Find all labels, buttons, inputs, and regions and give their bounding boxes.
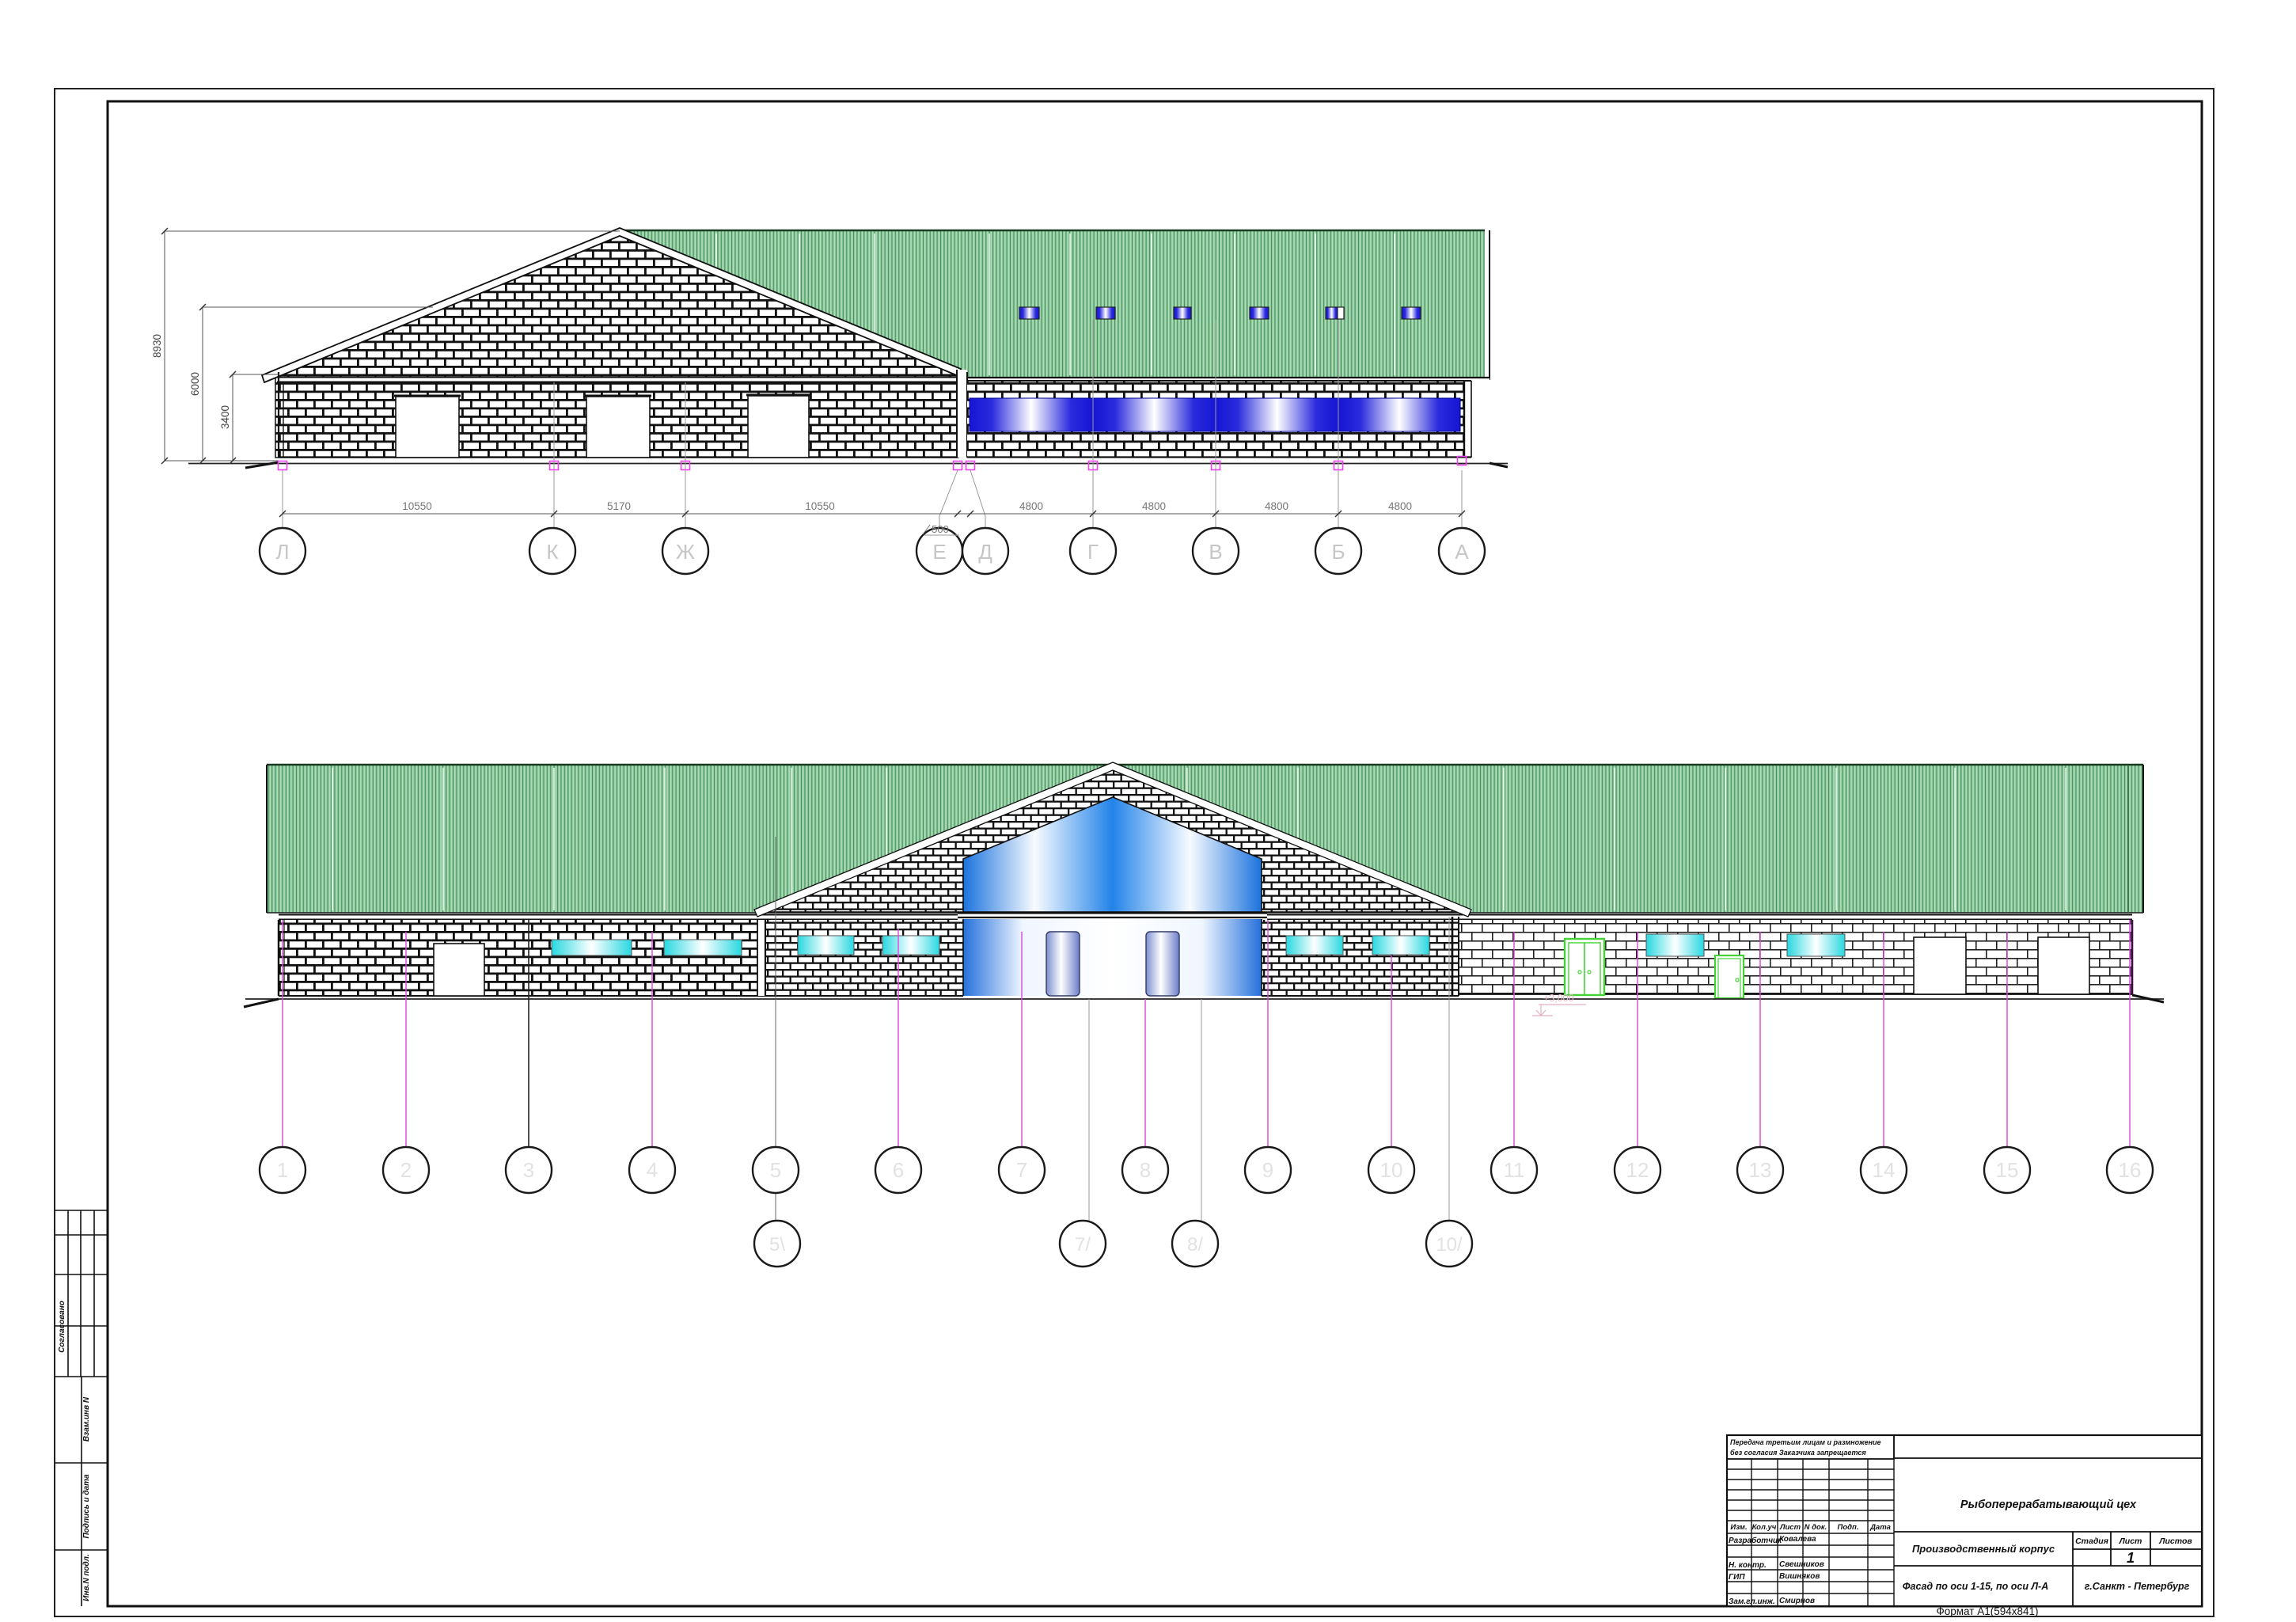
svg-text:14: 14 (1873, 1158, 1896, 1182)
svg-text:ГИП: ГИП (1729, 1573, 1745, 1582)
svg-text:8930: 8930 (151, 334, 163, 358)
svg-text:Лист: Лист (1779, 1523, 1801, 1532)
svg-text:10550: 10550 (402, 500, 432, 512)
svg-text:Л: Л (275, 540, 289, 564)
svg-text:Вишняков: Вишняков (1779, 1572, 1820, 1581)
svg-text:Рыбоперерабатывающий цех: Рыбоперерабатывающий цех (1960, 1499, 2137, 1511)
svg-text:1: 1 (277, 1158, 288, 1182)
svg-text:11: 11 (1504, 1158, 1525, 1182)
svg-text:5170: 5170 (607, 500, 631, 512)
svg-text:12: 12 (1626, 1158, 1649, 1182)
svg-text:4800: 4800 (1265, 500, 1288, 512)
svg-text:Б: Б (1331, 540, 1345, 564)
svg-text:Листов: Листов (2158, 1537, 2192, 1546)
svg-text:Г: Г (1087, 540, 1099, 564)
svg-text:7: 7 (1016, 1158, 1027, 1182)
svg-text:Д: Д (978, 540, 992, 564)
svg-text:А: А (1455, 540, 1469, 564)
svg-text:Дата: Дата (1869, 1523, 1891, 1532)
svg-text:Свешников: Свешников (1779, 1560, 1824, 1569)
svg-text:В: В (1209, 540, 1222, 564)
svg-text:Ж: Ж (676, 540, 695, 564)
svg-text:13: 13 (1749, 1158, 1772, 1182)
svg-text:Ковалева: Ковалева (1779, 1535, 1816, 1544)
svg-text:+3,000: +3,000 (1543, 993, 1574, 1004)
svg-text:4800: 4800 (1142, 500, 1166, 512)
svg-text:10/: 10/ (1436, 1234, 1463, 1255)
svg-text:Стадия: Стадия (2075, 1537, 2108, 1546)
svg-text:4800: 4800 (1019, 500, 1043, 512)
svg-text:Изм.: Изм. (1730, 1523, 1747, 1532)
svg-text:Зам.гл.инж.: Зам.гл.инж. (1729, 1597, 1775, 1606)
svg-text:9: 9 (1262, 1158, 1273, 1182)
svg-text:5\: 5\ (769, 1234, 785, 1255)
svg-text:1: 1 (2127, 1550, 2135, 1566)
svg-text:К: К (546, 540, 558, 564)
svg-text:6: 6 (893, 1158, 904, 1182)
svg-text:3: 3 (523, 1158, 534, 1182)
svg-text:Формат А1(594x841): Формат А1(594x841) (1936, 1605, 2038, 1617)
svg-text:5: 5 (770, 1158, 781, 1182)
svg-text:4: 4 (647, 1158, 658, 1182)
svg-text:Разработчик: Разработчик (1729, 1536, 1782, 1545)
svg-text:Подпись и дата: Подпись и дата (82, 1474, 91, 1538)
svg-text:8/: 8/ (1187, 1234, 1203, 1255)
svg-text:10550: 10550 (805, 500, 835, 512)
svg-text:Фасад по оси 1-15, по оси Л-А: Фасад по оси 1-15, по оси Л-А (1903, 1581, 2048, 1592)
svg-text:4800: 4800 (1388, 500, 1412, 512)
svg-text:16: 16 (2119, 1158, 2142, 1182)
svg-text:Передача третьим лицам и размн: Передача третьим лицам и размножение (1730, 1438, 1881, 1446)
svg-text:Производственный корпус: Производственный корпус (1912, 1543, 2055, 1555)
svg-text:N док.: N док. (1805, 1523, 1827, 1532)
svg-text:8: 8 (1140, 1158, 1151, 1182)
svg-text:Инв.N подл.: Инв.N подл. (82, 1554, 91, 1601)
svg-text:2: 2 (400, 1158, 412, 1182)
svg-text:без согласия Заказчика запреща: без согласия Заказчика запрещается (1730, 1449, 1866, 1457)
svg-text:Н. контр.: Н. контр. (1729, 1561, 1767, 1570)
svg-text:10: 10 (1380, 1158, 1403, 1182)
svg-text:7/: 7/ (1075, 1234, 1091, 1255)
svg-text:г.Санкт - Петербург: г.Санкт - Петербург (2085, 1581, 2190, 1592)
svg-text:Согласовано: Согласовано (58, 1301, 66, 1353)
svg-text:Кол.уч: Кол.уч (1752, 1523, 1777, 1532)
svg-text:500: 500 (932, 523, 949, 535)
svg-text:Е: Е (932, 540, 946, 564)
svg-text:Лист: Лист (2119, 1537, 2142, 1546)
svg-text:Взам.инв N: Взам.инв N (82, 1396, 91, 1442)
svg-text:15: 15 (1996, 1158, 2019, 1182)
svg-text:3400: 3400 (219, 405, 231, 429)
svg-text:Смирнов: Смирнов (1779, 1597, 1815, 1605)
svg-text:6000: 6000 (189, 372, 201, 396)
svg-text:Подп.: Подп. (1838, 1523, 1859, 1532)
